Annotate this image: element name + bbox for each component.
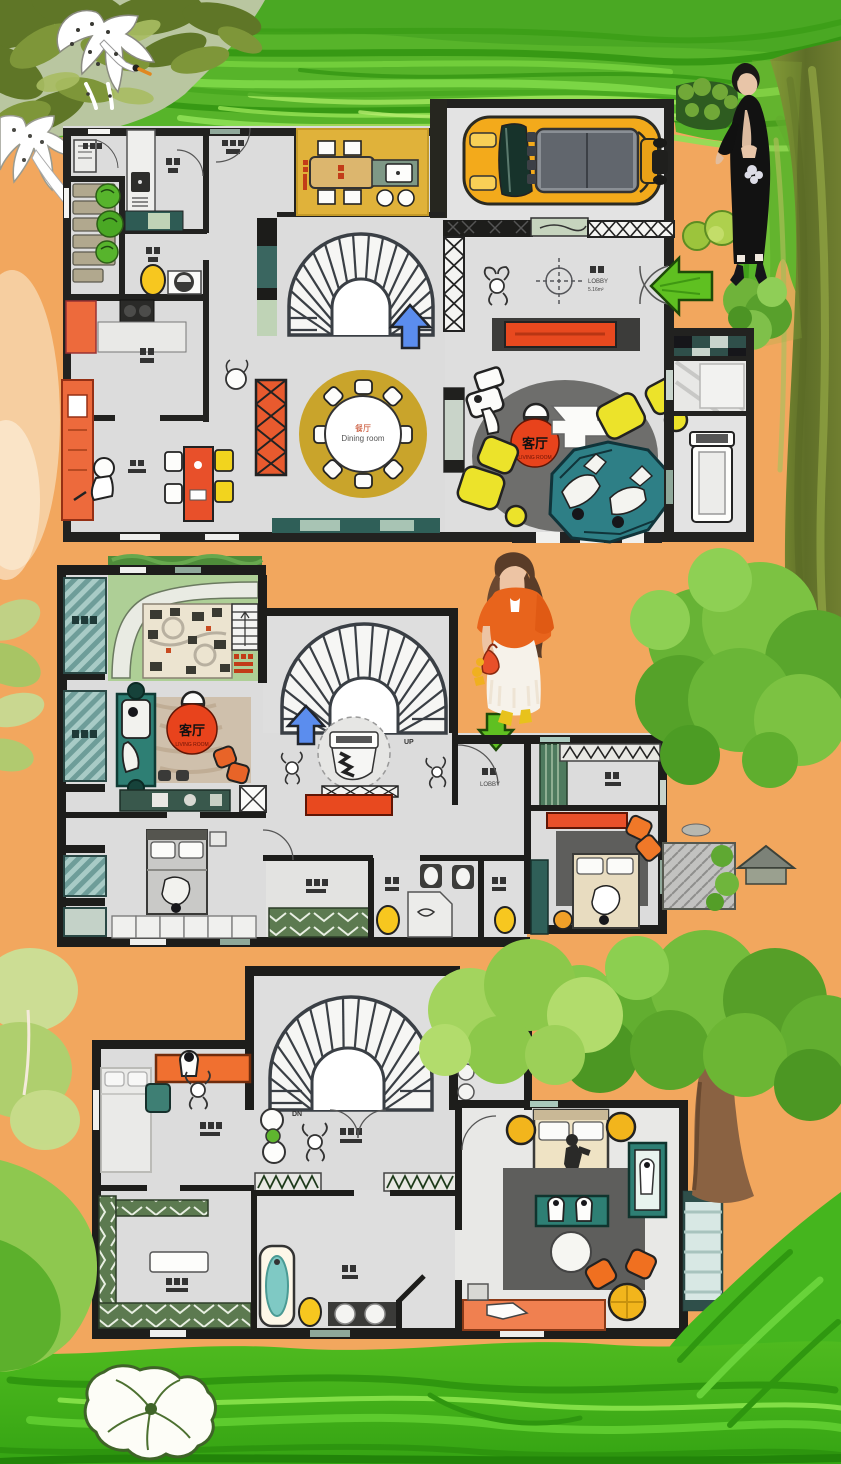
svg-text:LIVING ROOM: LIVING ROOM xyxy=(518,455,551,461)
svg-text:餐厅: 餐厅 xyxy=(355,424,371,433)
svg-text:DN: DN xyxy=(292,1111,302,1118)
svg-text:客厅: 客厅 xyxy=(522,436,548,451)
svg-text:UP: UP xyxy=(404,739,414,746)
svg-text:LIVING ROOM: LIVING ROOM xyxy=(175,742,208,748)
svg-text:LOBBY: LOBBY xyxy=(480,782,500,788)
svg-text:5.16m²: 5.16m² xyxy=(588,287,604,293)
svg-text:Dining room: Dining room xyxy=(341,434,384,443)
svg-text:客厅: 客厅 xyxy=(179,723,205,738)
svg-text:LOBBY: LOBBY xyxy=(588,279,608,285)
